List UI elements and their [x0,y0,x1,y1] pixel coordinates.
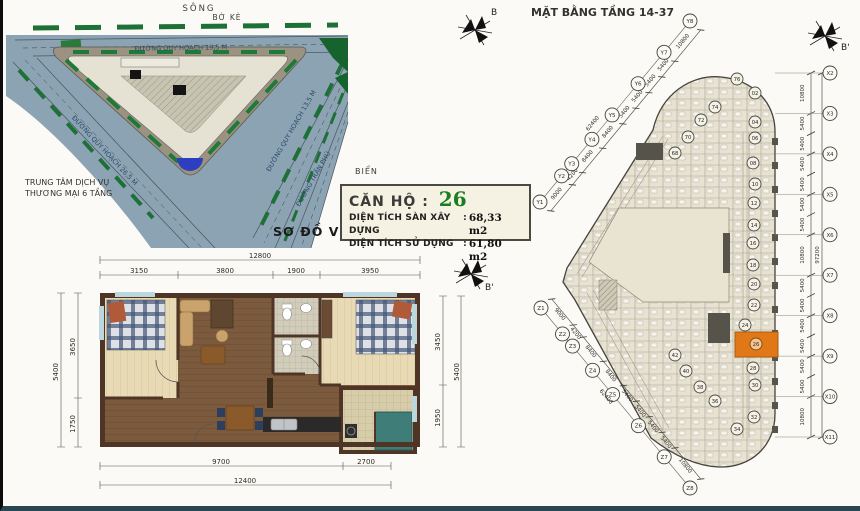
unit-number-label: 72 [698,118,705,124]
tv-cabinet [267,378,273,408]
unit-number-label: 06 [752,136,759,142]
axis-bubble-label: Z1 [537,306,545,312]
x-axis-dim-label: 10800 [800,246,806,264]
axis-bubble-label: Z6 [635,424,643,430]
svg-text:3650: 3650 [69,338,77,356]
unit-number-label: 22 [751,303,758,309]
compass-icon [808,21,842,51]
x-axis-dim-label: 10800 [800,408,806,426]
axis-bubble-label: Z8 [686,486,694,492]
tower-floor-plan: MẶT BẰNG TẦNG 14-37 90004200840084005400… [523,0,860,511]
z-axis-dim-label: 9000 [553,307,567,322]
unit-number-label: 02 [752,91,759,97]
usable-area-value: 61,80 m2 [469,238,522,264]
svg-text:9700: 9700 [212,458,230,466]
unit-number-label: 68 [672,151,679,157]
svg-text:3150: 3150 [130,267,148,275]
x-axis-dim-label: 5400 [800,157,806,171]
axis-bubble-label: X8 [826,314,834,320]
unit-number-label: 24 [742,323,749,329]
axis-bubble-label: Z2 [559,332,566,338]
compass-north-label: B' [841,43,850,53]
unit-number-label: 16 [750,241,757,247]
axis-bubble-label: Y5 [608,113,616,119]
bed2-pillow [392,301,413,320]
unit-number-label: 12 [751,201,758,207]
axis-bubble-label: X3 [826,111,833,117]
embankment-label: BỜ KÈ [212,13,241,22]
x-axis-dim-label: 5400 [800,359,806,373]
svg-text:3800: 3800 [216,267,234,275]
usable-area-label: DIỆN TÍCH SỬ DỤNG [349,238,463,264]
bed1-pillow [108,301,127,323]
unit-number-label: 70 [685,135,692,141]
svg-text:1750: 1750 [69,415,77,433]
axis-bubble-label: Z4 [589,368,597,374]
coffee-table [201,346,225,364]
x-axis-dim-label: 10800 [800,84,806,102]
axis-bubble-label: X10 [825,395,836,401]
axis-bubble-label: Y4 [587,137,595,143]
info-unit-number: 26 [439,187,467,211]
floorplan-sheet: SÔNG BỜ KÈ ĐƯỜNG QUY HOẠCH 19,5 M ĐƯỜNG … [0,0,860,511]
svg-text:3450: 3450 [434,333,442,351]
desk [211,300,233,328]
svg-text:1950: 1950 [434,409,442,427]
x-axis-dimensions: 1080054005400540054005400540010800540054… [775,66,837,444]
y-axis-dim-label: 9000 [550,186,564,201]
dining-table [226,406,254,430]
y-axis-dim-label: 8400 [601,125,615,140]
compass-north-label: B [491,8,497,18]
tower-plan-title: MẶT BẰNG TẦNG 14-37 [531,4,674,19]
x-axis-total-label: 97200 [815,246,821,264]
compass-icon [458,15,492,45]
axis-bubble-label: Y6 [634,82,642,88]
unit-number-label: 40 [683,369,690,375]
unit-number-label: 76 [734,77,741,83]
road-top-label: ĐƯỜNG QUY HOẠCH 19,5 M [135,42,228,53]
axis-bubble-label: Y2 [557,174,565,180]
svg-text:5400: 5400 [52,363,60,381]
y-axis-dim-label: 8400 [581,149,595,164]
sea-label: BIỂN [355,164,378,176]
stairs [599,280,617,310]
sofa-chaise [180,312,193,346]
svg-text:2700: 2700 [357,458,375,466]
x-axis-dim-label: 5400 [800,339,806,353]
unit-number-label: 04 [752,120,759,126]
dim-bottom-total: 12400 [234,477,256,485]
unit-number-label: 20 [751,282,758,288]
info-row-built-area: DIỆN TÍCH SÀN XÂY DỰNG : 68,33 m2 [349,212,522,238]
unit-number-label: 26 [753,342,760,348]
unit-number-label: 42 [672,353,679,359]
axis-bubble-label: X2 [826,71,833,77]
info-row-usable-area: DIỆN TÍCH SỬ DỤNG : 61,80 m2 [349,238,522,264]
sofa [180,300,210,312]
unit-number-label: 30 [752,383,759,389]
unit-number-label: 34 [734,427,741,433]
unit-number-label: 36 [712,399,719,405]
built-area-value: 68,33 m2 [469,212,522,238]
apartment-info-box: CĂN HỘ : 26 DIỆN TÍCH SÀN XÂY DỰNG : 68,… [340,184,531,241]
x-axis-dim-label: 5400 [800,217,806,231]
wardrobe [322,300,332,338]
built-area-label: DIỆN TÍCH SÀN XÂY DỰNG [349,212,463,238]
center-label-line1: TRUNG TÂM DỊCH VỤ [24,176,109,188]
elevator-core [708,313,730,343]
y-axis-dim-label: 5400 [618,105,632,120]
x-axis-dim-label: 5400 [800,379,806,393]
core-block [636,143,663,160]
svg-text:1900: 1900 [287,267,305,275]
y-axis-dim-label: 5400 [644,73,658,88]
center-label-line2: THƯƠNG MẠI 6 TẦNG [24,186,112,199]
x-axis-dim-label: 5400 [800,278,806,292]
axis-bubble-label: X11 [825,435,836,441]
unit-number-label: 38 [697,385,704,391]
axis-bubble-label: Y8 [686,19,694,25]
unit-number-label: 28 [750,366,757,372]
axis-bubble-label: X6 [826,233,834,239]
x-axis-dim-label: 5400 [800,298,806,312]
axis-bubble-label: Z3 [569,344,577,350]
compass-north-label: B' [485,283,494,293]
y-axis-total-label: 62400 [585,115,601,133]
dim-top-total: 12800 [249,252,271,260]
chair [216,330,228,342]
z-axis-dim-label: 8400 [583,345,597,360]
svg-text:5400: 5400 [453,363,461,381]
axis-bubble-label: Y1 [536,200,544,206]
axis-bubble-label: X4 [826,152,834,158]
unit-number-label: 74 [712,105,719,111]
axis-bubble-label: X5 [826,192,833,198]
x-axis-dim-label: 5400 [800,136,806,150]
unit-number-label: 14 [751,223,758,229]
unit-number-label: 32 [751,415,758,421]
x-axis-dim-label: 5400 [800,197,806,211]
axis-bubble-label: X9 [826,354,834,360]
info-title-label: CĂN HỘ : [349,194,429,210]
svg-text:3950: 3950 [361,267,379,275]
unit-number-label: 08 [750,161,757,167]
unit-number-label: 18 [750,263,757,269]
x-axis-dim-label: 5400 [800,177,806,191]
x-axis-dim-label: 5400 [800,318,806,332]
apartment-floor-plan: 12800 3150 3800 1900 3950 3650 1750 5400… [43,248,533,511]
x-axis-dim-label: 5400 [800,116,806,130]
axis-bubble-label: Z7 [661,455,669,461]
shaft [723,233,730,273]
axis-bubble-label: Y3 [567,162,575,168]
axis-bubble-label: X7 [826,273,833,279]
y-axis-dim-label: 5400 [657,58,671,73]
river-label: SÔNG [182,2,215,14]
axis-bubble-label: Y7 [660,50,668,56]
unit-number-label: 10 [752,182,759,188]
y-axis-dim-label: 5400 [631,89,645,104]
